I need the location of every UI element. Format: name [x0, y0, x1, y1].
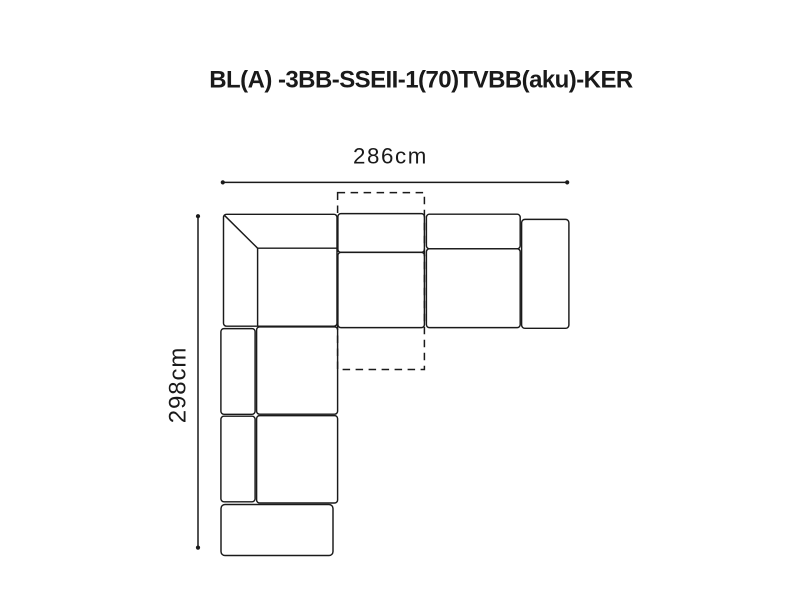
svg-text:286cm: 286cm	[353, 144, 428, 169]
svg-text:298cm: 298cm	[165, 347, 192, 424]
svg-text:BL(A) -3BB-SSEII-1(70)TVBB(aku: BL(A) -3BB-SSEII-1(70)TVBB(aku)-KER	[209, 67, 633, 94]
